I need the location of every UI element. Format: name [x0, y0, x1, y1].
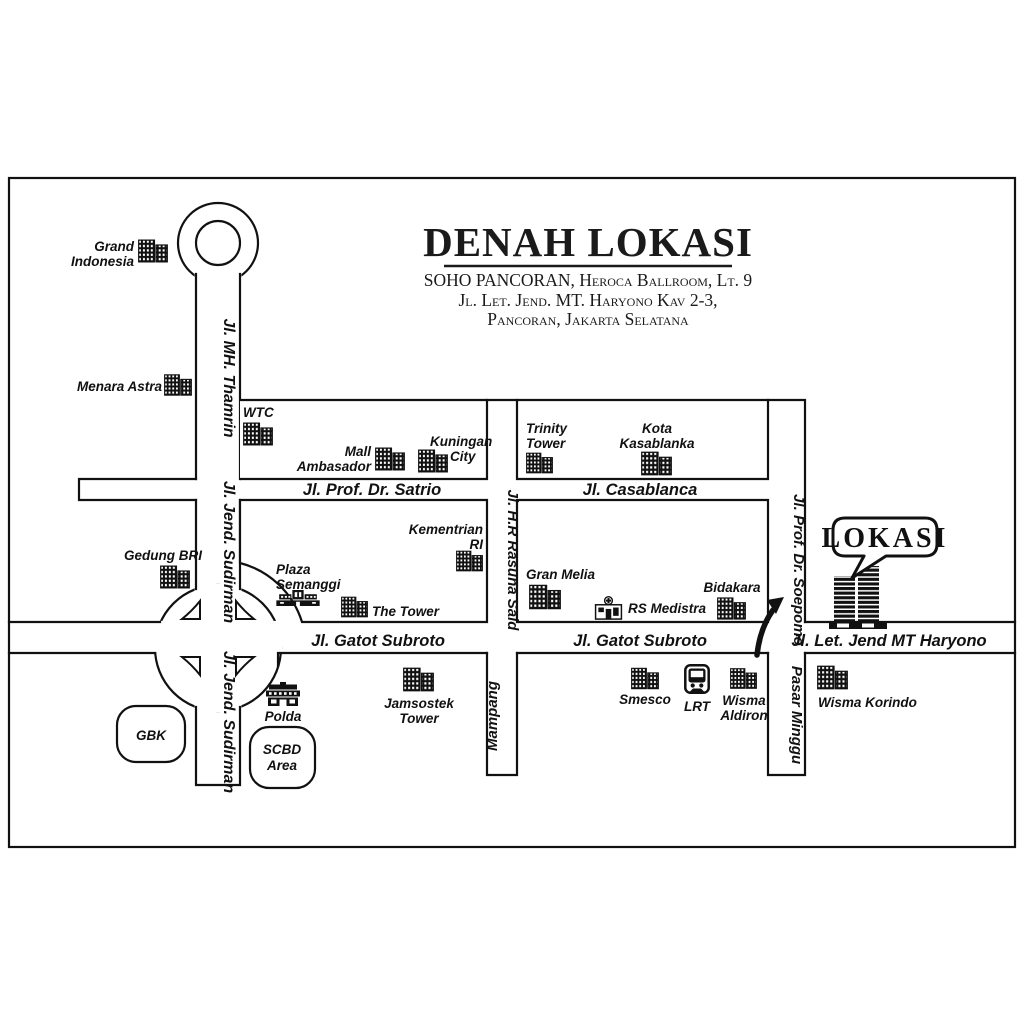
label-trinity-tower-1: Trinity: [526, 421, 568, 436]
subtitle-line-2: Jl. Let. Jend. MT. Haryono Kav 2-3,: [458, 290, 717, 310]
label-the-tower: The Tower: [372, 604, 440, 619]
label-wisma-aldiron-2: Aldiron: [719, 708, 767, 723]
building-icon-jamsostek-tower: [404, 668, 434, 690]
label-kuningan-city-2: City: [450, 449, 477, 464]
road-label-soepomo: Jl. Prof. Dr. Soepomo: [790, 494, 807, 646]
label-rs-medistra: RS Medistra: [628, 601, 707, 616]
road-label-rasuna-said: Jl. H.R Rasuna Said: [504, 490, 521, 632]
road-label-gatot-subroto-east: Jl. Gatot Subroto: [573, 632, 707, 650]
label-lrt: LRT: [684, 699, 712, 714]
road-label-pasar-minggu: Pasar Minggu: [788, 666, 805, 764]
building-icon-menara-astra: [165, 375, 192, 395]
label-scbd-2: Area: [266, 758, 298, 773]
train-icon-lrt: [685, 665, 708, 692]
road-label-mampang: Mampang: [484, 681, 501, 751]
label-grand-indonesia-2: Indonesia: [71, 254, 135, 269]
building-icon-smesco: [632, 668, 659, 688]
storefront-icon-polda: [266, 682, 300, 706]
label-trinity-tower-2: Tower: [526, 436, 566, 451]
label-kota-kasablanka-2: Kasablanka: [619, 436, 695, 451]
label-gedung-bri: Gedung BRI: [124, 548, 202, 563]
subtitle-line-1: SOHO PANCORAN, Heroca Ballroom, Lt. 9: [424, 270, 753, 290]
road-label-casablanca: Jl. Casablanca: [583, 481, 698, 499]
label-plaza-semanggi-1: Plaza: [276, 562, 311, 577]
road-label-satrio: Jl. Prof. Dr. Satrio: [303, 481, 441, 499]
roundabout-bundaran-hi: [178, 203, 258, 290]
label-polda: Polda: [265, 709, 302, 724]
label-mall-ambasador-1: Mall: [345, 444, 372, 459]
label-jamsostek-2: Tower: [399, 711, 439, 726]
lokasi-callout-label: LOKASI: [822, 523, 949, 554]
label-jamsostek-1: Jamsostek: [384, 696, 455, 711]
label-bidakara: Bidakara: [703, 580, 761, 595]
label-plaza-semanggi-2: Semanggi: [276, 577, 341, 592]
subtitle-line-3: Pancoran, Jakarta Selatana: [487, 309, 689, 329]
label-kementrian-ri-1: Kementrian: [409, 522, 483, 537]
label-smesco: Smesco: [619, 692, 671, 707]
label-wisma-aldiron-1: Wisma: [722, 693, 766, 708]
label-grand-indonesia-1: Grand: [94, 239, 135, 254]
building-icon-grand-indonesia: [139, 240, 168, 262]
road-label-sudirman-upper: Jl. Jend. Sudirman: [220, 481, 237, 623]
label-scbd-1: SCBD: [263, 742, 302, 757]
road-label-gatot-subroto-west: Jl. Gatot Subroto: [311, 632, 445, 650]
semanggi-interchange: [153, 584, 282, 712]
label-gbk: GBK: [136, 728, 167, 743]
label-gran-melia: Gran Melia: [526, 567, 596, 582]
label-wtc: WTC: [243, 405, 274, 420]
label-kuningan-city-1: Kuningan: [430, 434, 492, 449]
label-mall-ambasador-2: Ambasador: [296, 459, 372, 474]
denah-lokasi-map: DENAH LOKASI SOHO PANCORAN, Heroca Ballr…: [0, 0, 1024, 1024]
label-wisma-korindo: Wisma Korindo: [818, 695, 917, 710]
building-icon-gedung-bri: [161, 566, 190, 588]
map-page: DENAH LOKASI SOHO PANCORAN, Heroca Ballr…: [0, 0, 1024, 1024]
building-icon-wisma-korindo: [818, 666, 848, 688]
road-label-thamrin: Jl. MH. Thamrin: [220, 318, 237, 437]
building-icon-wisma-aldiron: [731, 669, 757, 689]
label-kementrian-ri-2: RI: [470, 537, 484, 552]
title-block: DENAH LOKASI SOHO PANCORAN, Heroca Ballr…: [423, 219, 753, 329]
road-label-sudirman-lower: Jl. Jend. Sudirman: [220, 651, 237, 793]
page-title: DENAH LOKASI: [423, 219, 753, 265]
road-label-mt-haryono: Jl. Let. Jend MT Haryono: [791, 632, 986, 650]
label-kota-kasablanka-1: Kota: [642, 421, 672, 436]
label-menara-astra: Menara Astra: [77, 379, 163, 394]
